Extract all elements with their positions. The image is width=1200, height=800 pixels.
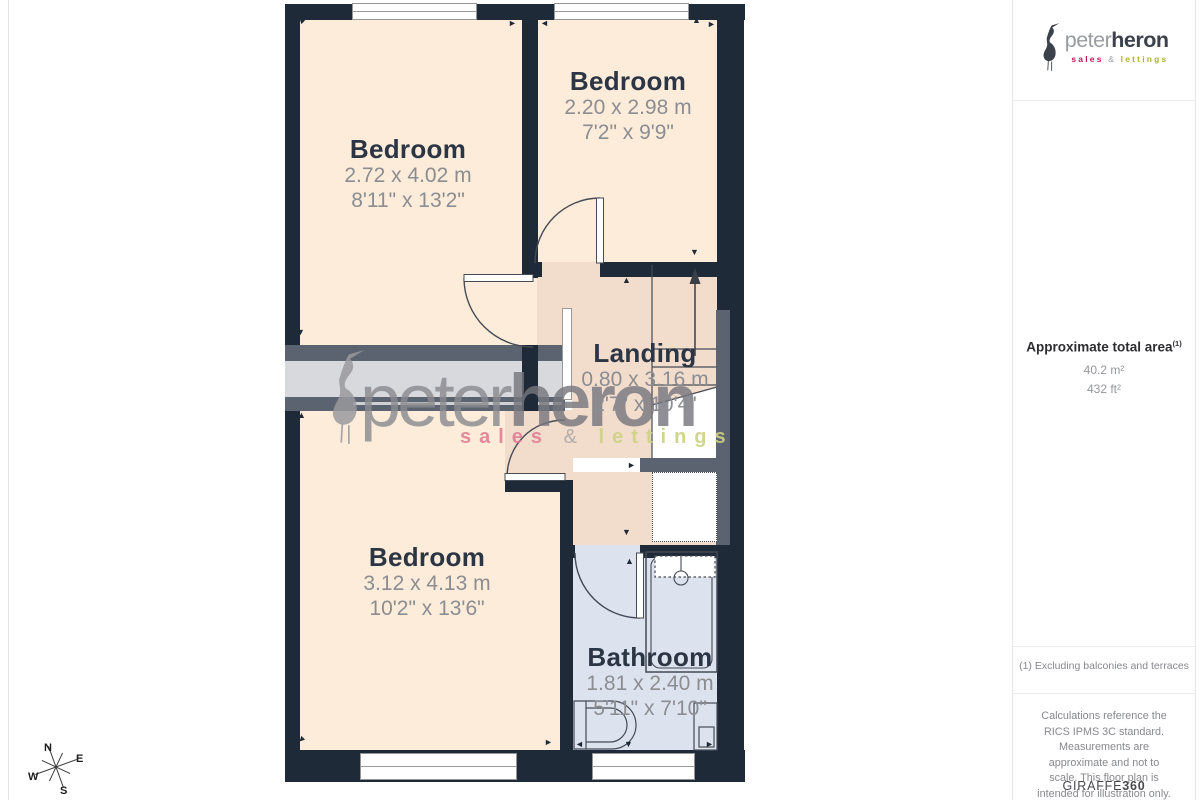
- total-area-imperial: 432 ft²: [1013, 380, 1195, 399]
- room-fill-bedroom-3-right: [505, 492, 560, 750]
- wall-under-bedroom-2-b: [600, 262, 730, 277]
- wall-stub-void-2: [522, 345, 538, 411]
- wall-under-bedroom-2-a: [537, 262, 542, 277]
- room-fill-landing-corridor: [572, 410, 717, 458]
- measure-arrow: ▼: [624, 740, 633, 749]
- measure-arrow: ▲: [297, 411, 306, 420]
- window-top-2: [554, 3, 689, 20]
- measure-arrow: ►: [544, 738, 553, 747]
- sidebar-divider: [1013, 693, 1195, 694]
- window-bottom-2: [592, 753, 695, 780]
- room-fill-bathroom: [573, 558, 717, 750]
- total-area-metric: 40.2 m²: [1013, 361, 1195, 380]
- void-fill: [285, 361, 562, 397]
- room-fill-bedroom-2: [537, 20, 717, 262]
- logo-tagline: sales & lettings: [1065, 54, 1169, 64]
- doorway-bedroom-2: [540, 262, 600, 277]
- sidebar-divider: [1013, 100, 1195, 101]
- measure-arrow: ►: [705, 740, 714, 749]
- heron-icon: [1040, 22, 1062, 72]
- wall-bedroom-3-top: [505, 480, 573, 492]
- area-footnote: (1) Excluding balconies and terraces: [1013, 660, 1195, 672]
- agency-logo: peterheron sales & lettings: [1013, 20, 1195, 72]
- measure-arrow: ►: [707, 20, 716, 29]
- measure-arrow: ▲: [625, 557, 634, 566]
- measure-arrow: ▲: [622, 276, 631, 285]
- wall-bedroom-3-right: [560, 492, 573, 752]
- cupboard: [652, 472, 717, 542]
- wall-divider-bedrooms: [522, 4, 538, 278]
- wall-bathroom-top-left: [560, 545, 575, 558]
- stair-half-wall: [716, 310, 730, 545]
- compass: N E W S: [18, 733, 98, 797]
- window-bottom-1: [360, 753, 517, 780]
- measure-arrow: ◄: [575, 740, 584, 749]
- measure-arrow: ►: [508, 19, 517, 28]
- compass-south: S: [60, 785, 67, 797]
- stair-bottom-wall: [640, 458, 730, 472]
- floorplan-page: peterheron sales & lettings Bedroom 2.72…: [0, 0, 1200, 800]
- compass-east: E: [76, 753, 83, 765]
- window-top-1: [352, 3, 477, 20]
- measure-arrow: ▲: [692, 16, 701, 25]
- measure-arrow: ▼: [690, 248, 699, 257]
- wall-bathroom-top-right: [640, 545, 730, 558]
- measure-arrow: ▼: [296, 328, 305, 337]
- total-area-title: Approximate total area(1): [1013, 339, 1195, 355]
- page-border: [8, 0, 9, 800]
- measure-arrow: ▼: [622, 528, 631, 537]
- measure-arrow: ◄: [540, 19, 549, 28]
- measure-arrow: ►: [627, 461, 636, 470]
- giraffe-credit: GIRAFFE360: [1013, 779, 1195, 793]
- room-fill-landing-mid: [572, 345, 717, 410]
- room-fill-landing-alcove: [505, 410, 573, 480]
- doorway-bedroom-1: [522, 278, 538, 345]
- logo-text-block: peterheron sales & lettings: [1065, 20, 1169, 64]
- compass-north: N: [44, 742, 52, 754]
- room-fill-bedroom-3-left: [300, 410, 505, 750]
- room-fill-bedroom-1: [300, 20, 522, 345]
- sidebar-divider: [1013, 646, 1195, 647]
- total-area-block: Approximate total area(1) 40.2 m² 432 ft…: [1013, 339, 1195, 399]
- compass-west: W: [28, 771, 39, 783]
- void-opening-gap: [562, 308, 572, 400]
- sidebar: peterheron sales & lettings Approximate …: [1012, 0, 1196, 800]
